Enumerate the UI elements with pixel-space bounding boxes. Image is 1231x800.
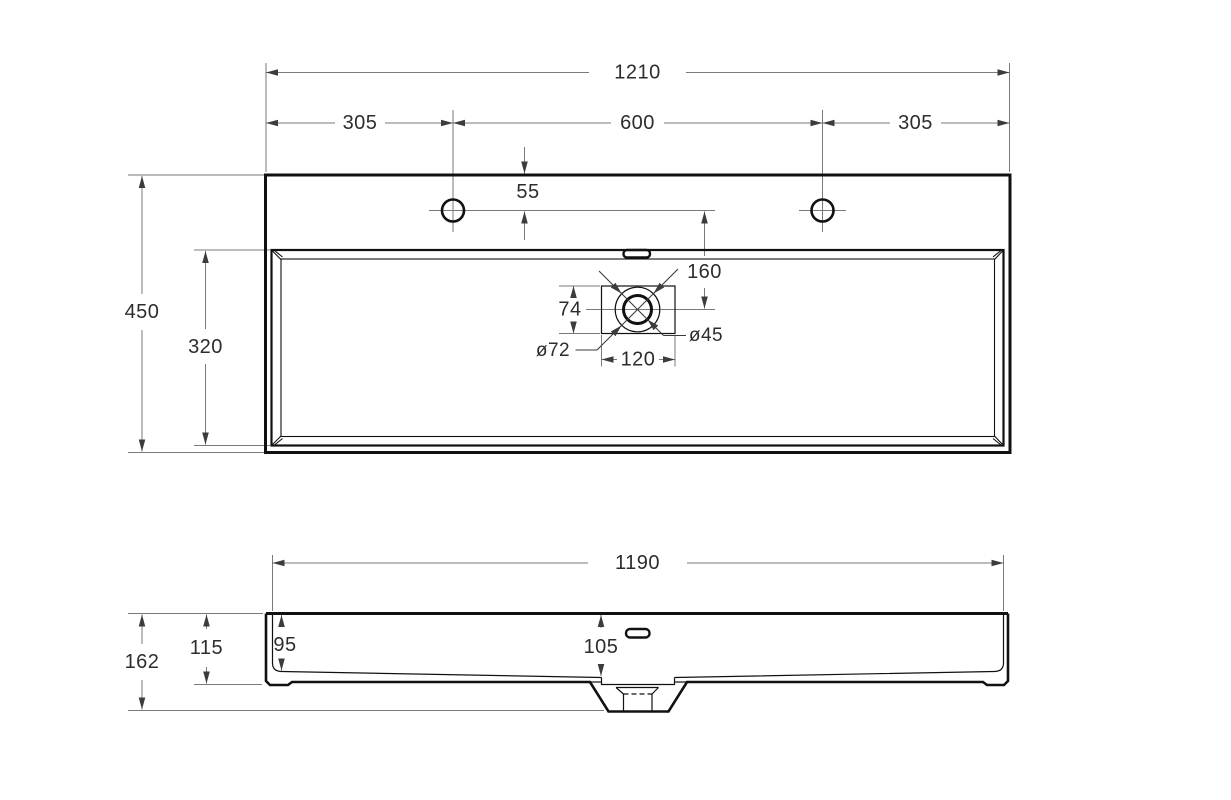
drawing-canvas: 1210 305 600 305 55 bbox=[0, 0, 1231, 800]
label-overall-depth: 450 bbox=[125, 301, 160, 323]
dim-bowl-depth-drain: 105 bbox=[584, 615, 619, 676]
dim-body-height: 115 bbox=[190, 615, 223, 684]
dim-bowl-depth: 320 bbox=[188, 251, 223, 445]
dim-right-faucet-offset: 305 bbox=[823, 112, 1010, 134]
plan-geometry: ø72 ø45 bbox=[266, 175, 1011, 453]
label-bowl-depth-side: 95 bbox=[273, 634, 296, 656]
front-view: 1190 162 115 95 105 bbox=[125, 552, 1008, 712]
label-recess-height: 74 bbox=[558, 299, 581, 321]
dim-bowl-depth-side: 95 bbox=[273, 615, 296, 671]
label-right-faucet-offset: 305 bbox=[898, 112, 933, 134]
drain-outlet-funnel bbox=[616, 688, 659, 712]
label-faucet-spacing: 600 bbox=[620, 112, 655, 134]
dim-inner-width: 1190 bbox=[273, 552, 1004, 574]
label-drain-inner-diameter: ø45 bbox=[689, 325, 723, 346]
front-dimensions: 1190 162 115 95 105 bbox=[125, 552, 1004, 710]
label-recess-width: 120 bbox=[621, 349, 656, 371]
inner-wall-right bbox=[675, 614, 1004, 678]
label-body-height: 115 bbox=[190, 637, 223, 659]
dim-recess-height: 74 bbox=[558, 286, 581, 334]
label-inner-width: 1190 bbox=[615, 552, 660, 574]
label-faucet-to-drain: 160 bbox=[687, 261, 722, 283]
label-bowl-depth: 320 bbox=[188, 336, 223, 358]
label-faucet-from-back-edge: 55 bbox=[516, 181, 539, 203]
dim-overall-depth: 450 bbox=[125, 176, 160, 452]
label-drain-outer-diameter: ø72 bbox=[536, 340, 570, 361]
dim-recess-width: 120 bbox=[602, 349, 676, 371]
front-extension-lines bbox=[128, 555, 1004, 711]
overflow-slot-front bbox=[626, 629, 650, 638]
label-overall-width: 1210 bbox=[614, 62, 661, 84]
inner-wall-left bbox=[273, 614, 602, 678]
dim-total-height: 162 bbox=[125, 615, 160, 710]
dim-left-faucet-offset: 305 bbox=[266, 112, 453, 134]
label-left-faucet-offset: 305 bbox=[343, 112, 378, 134]
plan-dimensions: 1210 305 600 305 55 bbox=[125, 62, 1010, 452]
dim-faucet-spacing: 600 bbox=[453, 112, 823, 134]
front-geometry bbox=[266, 614, 1008, 712]
plan-view: 1210 305 600 305 55 bbox=[125, 62, 1010, 453]
overflow-slot-plan bbox=[624, 250, 651, 258]
label-total-height: 162 bbox=[125, 651, 160, 673]
dim-faucet-from-back-edge: 55 bbox=[516, 147, 539, 240]
drain-recess-front bbox=[602, 678, 675, 685]
label-bowl-depth-drain: 105 bbox=[584, 636, 619, 658]
dim-overall-width: 1210 bbox=[266, 62, 1010, 84]
plan-extension-lines bbox=[128, 63, 1010, 453]
basin-outline-plan bbox=[266, 175, 1011, 453]
dim-faucet-to-drain: 160 bbox=[687, 212, 722, 309]
basin-technical-drawing: 1210 305 600 305 55 bbox=[0, 0, 1231, 800]
